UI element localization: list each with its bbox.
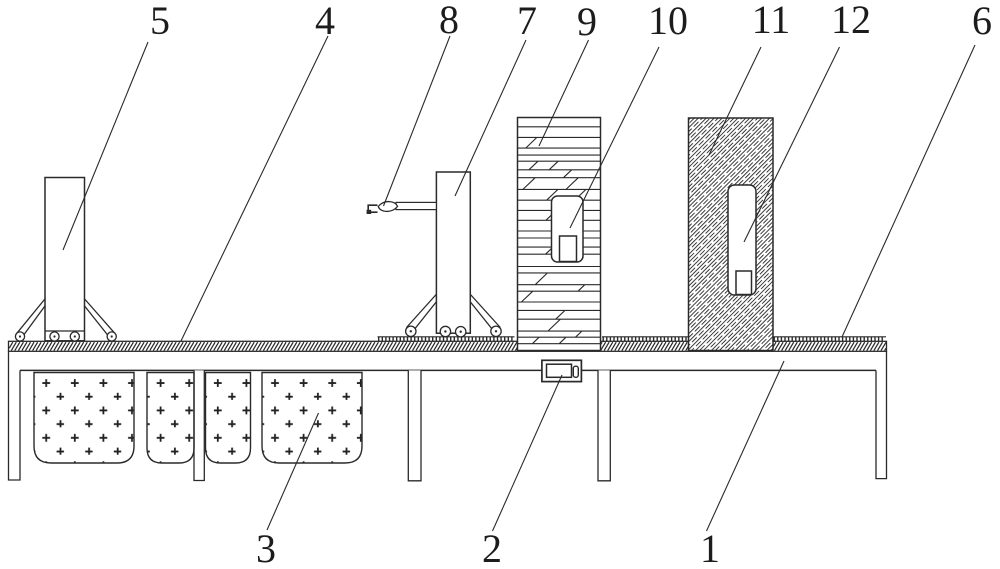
svg-text:3: 3 bbox=[256, 526, 276, 569]
svg-text:6: 6 bbox=[972, 0, 992, 43]
svg-text:2: 2 bbox=[482, 526, 502, 569]
svg-text:7: 7 bbox=[517, 0, 537, 43]
svg-text:5: 5 bbox=[150, 0, 170, 43]
svg-text:12: 12 bbox=[831, 0, 871, 42]
svg-text:11: 11 bbox=[752, 0, 791, 42]
svg-text:4: 4 bbox=[315, 0, 335, 43]
svg-text:9: 9 bbox=[577, 0, 597, 44]
svg-text:10: 10 bbox=[648, 0, 688, 43]
svg-text:1: 1 bbox=[700, 526, 720, 569]
svg-text:8: 8 bbox=[439, 0, 459, 42]
